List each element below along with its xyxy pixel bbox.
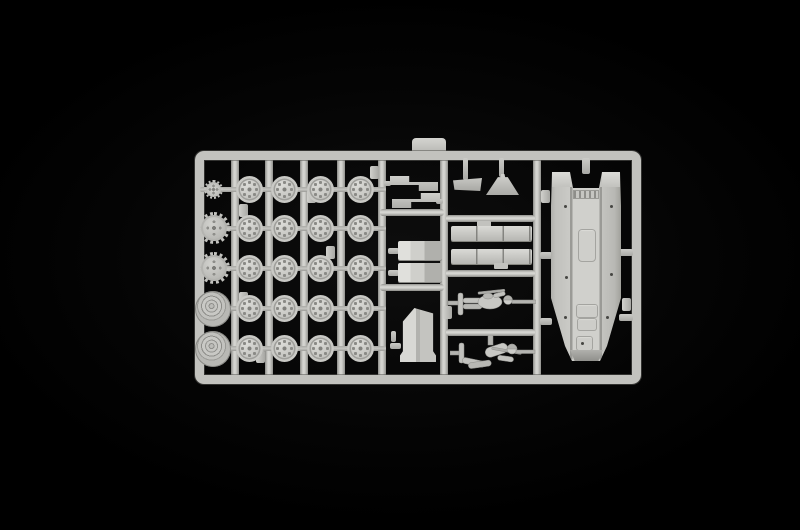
soldier-figure-standing bbox=[448, 289, 536, 319]
road-wheel bbox=[271, 176, 298, 203]
road-wheel bbox=[236, 335, 263, 362]
road-wheel bbox=[307, 335, 334, 362]
hull-bow-hatch bbox=[576, 336, 593, 351]
hull-hole bbox=[565, 276, 568, 279]
road-wheel bbox=[347, 255, 374, 282]
hull-hole bbox=[564, 316, 567, 319]
road-wheel bbox=[236, 176, 263, 203]
hull-fender bbox=[552, 172, 570, 187]
sprue-nub bbox=[370, 166, 379, 179]
road-wheel bbox=[271, 215, 298, 242]
road-wheel bbox=[236, 295, 263, 322]
hull-body bbox=[546, 170, 624, 364]
box-part bbox=[398, 263, 442, 282]
gate-stub bbox=[463, 158, 468, 180]
hull-hatch bbox=[577, 318, 597, 331]
road-wheel bbox=[271, 295, 298, 322]
hull-engine-panel bbox=[578, 229, 596, 262]
road-wheel bbox=[236, 255, 263, 282]
road-wheel bbox=[307, 255, 334, 282]
ringed-wheel bbox=[195, 291, 231, 327]
drive-sprocket bbox=[198, 212, 230, 244]
box-part bbox=[398, 241, 442, 260]
road-wheel bbox=[347, 335, 374, 362]
hull-hole bbox=[610, 273, 613, 276]
vehicle-upper-hull bbox=[546, 170, 624, 364]
drive-sprocket bbox=[198, 252, 230, 284]
segmented-bar bbox=[451, 226, 532, 241]
photo-background bbox=[0, 0, 800, 530]
gate-stub bbox=[384, 181, 391, 186]
hull-center-deck bbox=[570, 187, 602, 359]
road-wheel bbox=[347, 215, 374, 242]
hull-grille-detail bbox=[573, 190, 599, 199]
hull-hole bbox=[606, 316, 609, 319]
ringed-wheel bbox=[195, 331, 231, 367]
road-wheel bbox=[347, 295, 374, 322]
hull-hole bbox=[564, 205, 567, 208]
road-wheel bbox=[271, 255, 298, 282]
gate-stub bbox=[390, 343, 401, 349]
road-wheel bbox=[307, 215, 334, 242]
idler-wheel bbox=[204, 180, 223, 199]
hull-hole bbox=[581, 342, 584, 345]
road-wheel bbox=[307, 176, 334, 203]
road-wheel bbox=[271, 335, 298, 362]
road-wheel bbox=[347, 176, 374, 203]
hull-hole bbox=[610, 205, 613, 208]
gate-stub bbox=[391, 331, 396, 342]
segmented-bar bbox=[451, 249, 532, 264]
gate-stub bbox=[494, 263, 508, 269]
road-wheel bbox=[236, 215, 263, 242]
soldier-figure-crouching bbox=[450, 335, 536, 375]
road-wheel bbox=[307, 295, 334, 322]
hull-fender bbox=[602, 172, 620, 187]
hull-hatch bbox=[576, 304, 598, 318]
